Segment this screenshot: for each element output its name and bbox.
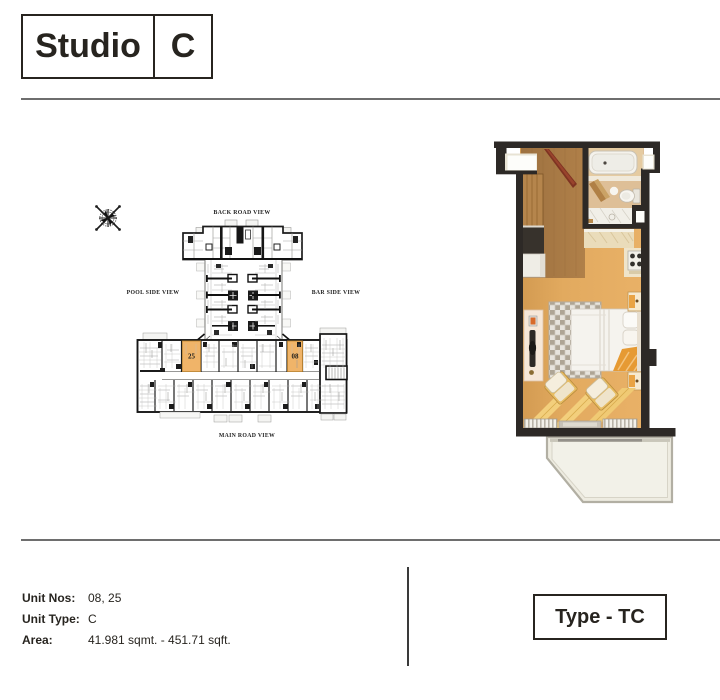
- svg-text:POOL SIDE VIEW: POOL SIDE VIEW: [127, 290, 180, 296]
- svg-text:08: 08: [292, 353, 300, 361]
- svg-text:BACK ROAD VIEW: BACK ROAD VIEW: [214, 210, 271, 216]
- svg-text:25: 25: [188, 353, 196, 361]
- svg-text:BAR SIDE VIEW: BAR SIDE VIEW: [312, 290, 361, 296]
- svg-text:MAIN ROAD VIEW: MAIN ROAD VIEW: [219, 433, 275, 439]
